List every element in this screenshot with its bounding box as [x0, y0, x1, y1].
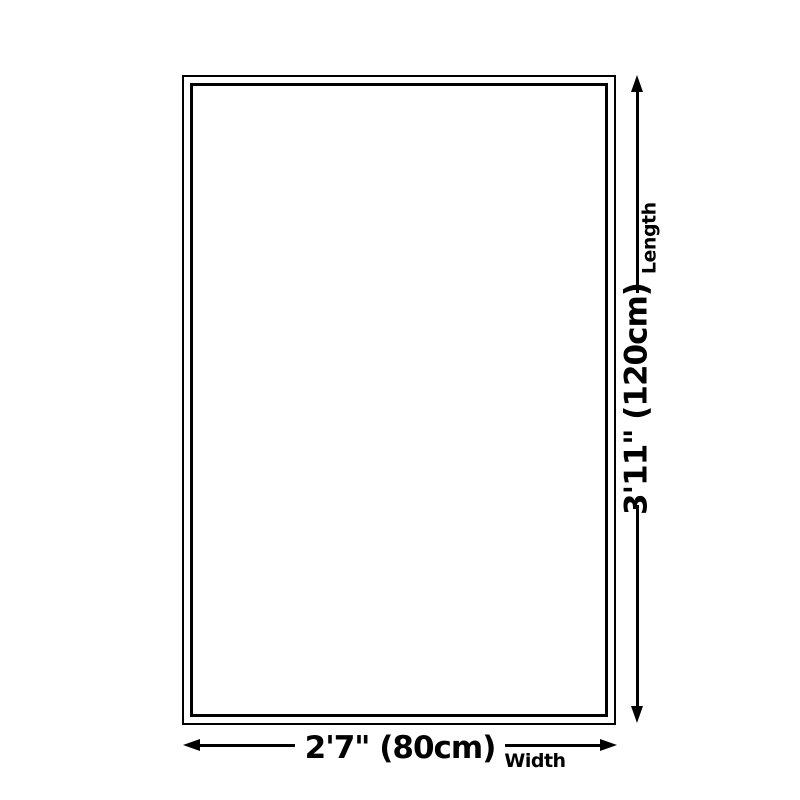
- length-dimension: 3'11" (120cm) Length: [629, 75, 645, 723]
- width-value: 2'7" (80cm): [305, 730, 496, 766]
- rug-outline: [182, 75, 616, 725]
- arrow-left-icon: [183, 739, 200, 751]
- arrow-right-icon: [600, 739, 617, 751]
- width-label: 2'7" (80cm) Width: [305, 733, 496, 764]
- length-value: 3'11" (120cm): [619, 283, 655, 515]
- arrow-down-icon: [631, 706, 643, 723]
- arrow-up-icon: [631, 75, 643, 92]
- width-dimension: 2'7" (80cm) Width: [183, 729, 617, 761]
- dimension-diagram: 3'11" (120cm) Length 2'7" (80cm) Width: [0, 0, 800, 800]
- length-line-bottom: [636, 505, 639, 706]
- width-axis-label: Width: [504, 752, 565, 771]
- length-label-slot: 3'11" (120cm) Length: [629, 293, 645, 505]
- width-line-left: [200, 744, 295, 747]
- width-line-right: [505, 744, 600, 747]
- rug-inner-border: [190, 83, 608, 717]
- length-label: 3'11" (120cm) Length: [622, 283, 653, 515]
- length-axis-label: Length: [641, 202, 660, 274]
